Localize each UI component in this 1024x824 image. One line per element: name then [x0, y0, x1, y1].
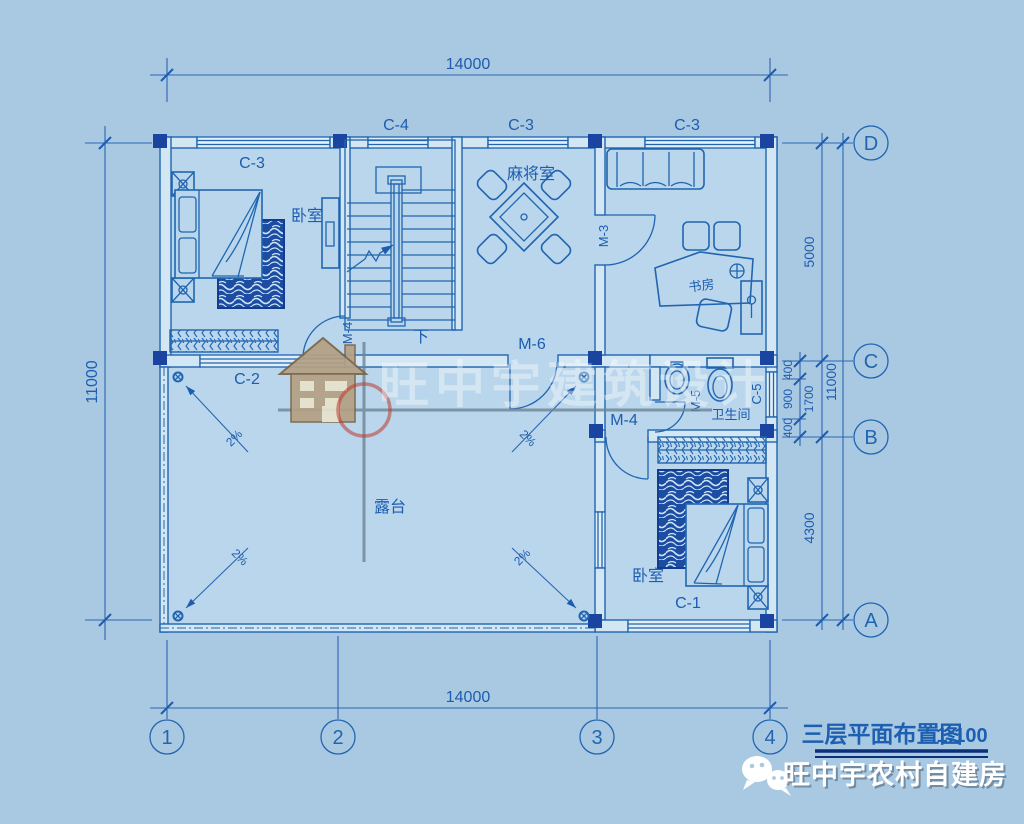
room-label-mahjong: 麻将室: [507, 165, 555, 183]
room-label-terrace: 露台: [374, 498, 406, 516]
dim-right-lower: 4300: [801, 512, 817, 543]
dim-right-upper: 5000: [801, 236, 817, 267]
axis-label-4: 4: [764, 727, 775, 749]
axis-label-3: 3: [591, 727, 602, 749]
axis-label-A: A: [864, 610, 878, 632]
window-label-c3-study: C-3: [674, 117, 700, 134]
window-c1-bedroom: [628, 620, 750, 632]
desk-lamp: [730, 264, 744, 278]
nightstand: [172, 278, 194, 302]
door-label-m4-top: M-4: [340, 322, 355, 344]
door-label-m6: M-6: [518, 336, 546, 353]
drawing-scale: 1:100: [936, 725, 987, 747]
axis-label-2: 2: [332, 727, 343, 749]
floor-plan-drawing: 14000 11000 14000 400 900 400: [0, 0, 1024, 819]
nightstand: [748, 478, 768, 502]
window-label-c2: C-2: [234, 371, 260, 388]
brand-block: 旺中宇农村自建房 旺中宇农村自建房: [742, 756, 1009, 796]
bay-window-seat: [170, 330, 278, 352]
dim-left-value: 11000: [84, 360, 101, 403]
window-c3-study: [645, 137, 755, 148]
brand-text: 旺中宇农村自建房: [783, 759, 1007, 790]
dim-bottom-value: 14000: [446, 689, 491, 706]
dim-right-overall: 11000: [823, 363, 839, 401]
axis-label-D: D: [864, 133, 878, 155]
window-terrace-bedroom: [595, 512, 605, 568]
window-label-c1: C-1: [675, 595, 701, 612]
dim-right-sub-2: 900: [781, 389, 795, 409]
dim-top-value: 14000: [446, 56, 491, 73]
axis-label-C: C: [864, 351, 878, 373]
room-label-bedroom-bottom: 卧室: [632, 567, 664, 585]
title-block: 三层平面布置图 1:100: [802, 721, 989, 757]
room-label-bedroom-top: 卧室: [291, 207, 323, 225]
bed: [686, 504, 768, 586]
window-c3-mahjong: [488, 137, 568, 148]
window-c3-bedroom: [197, 137, 330, 148]
axis-label-B: B: [864, 427, 877, 449]
dim-right-sub-3: 400: [781, 418, 795, 438]
window-label-c3-bedroom: C-3: [239, 155, 265, 172]
stair-down-label: 下: [413, 329, 429, 346]
nightstand: [748, 585, 768, 609]
dim-right-sub-1: 400: [781, 360, 795, 380]
door-label-m4-bottom: M-4: [610, 412, 638, 429]
window-label-c4: C-4: [383, 117, 409, 134]
axis-label-1: 1: [161, 727, 172, 749]
bed: [175, 190, 262, 278]
window-c4-stair: [368, 137, 428, 148]
watermark-text: 旺中宇建筑设计: [379, 357, 771, 413]
window-label-c3-mahjong: C-3: [508, 117, 534, 134]
room-label-study: 书房: [688, 277, 716, 295]
door-label-m3: M-3: [596, 225, 611, 247]
wardrobe: [658, 437, 766, 463]
dim-right-mid: 1700: [802, 385, 816, 412]
